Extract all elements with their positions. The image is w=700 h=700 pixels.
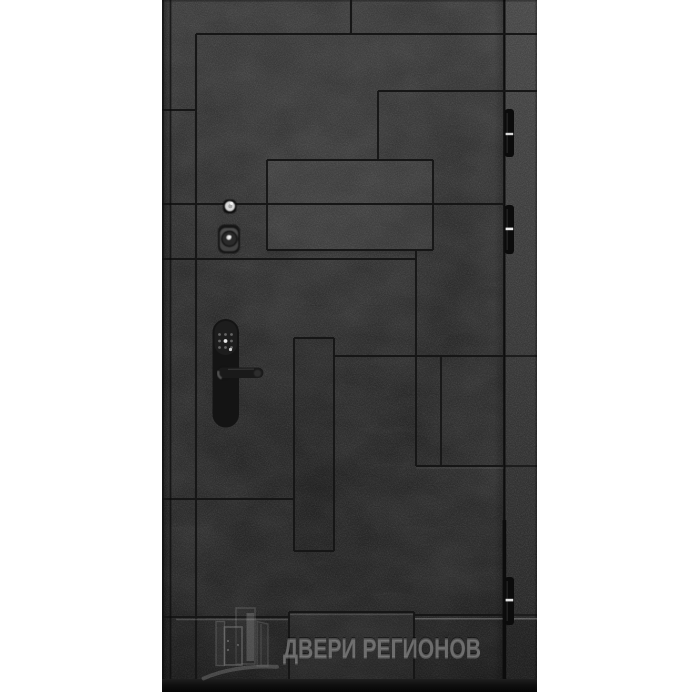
svg-text:ДВЕРИ РЕГИОНОВ: ДВЕРИ РЕГИОНОВ (283, 631, 481, 663)
